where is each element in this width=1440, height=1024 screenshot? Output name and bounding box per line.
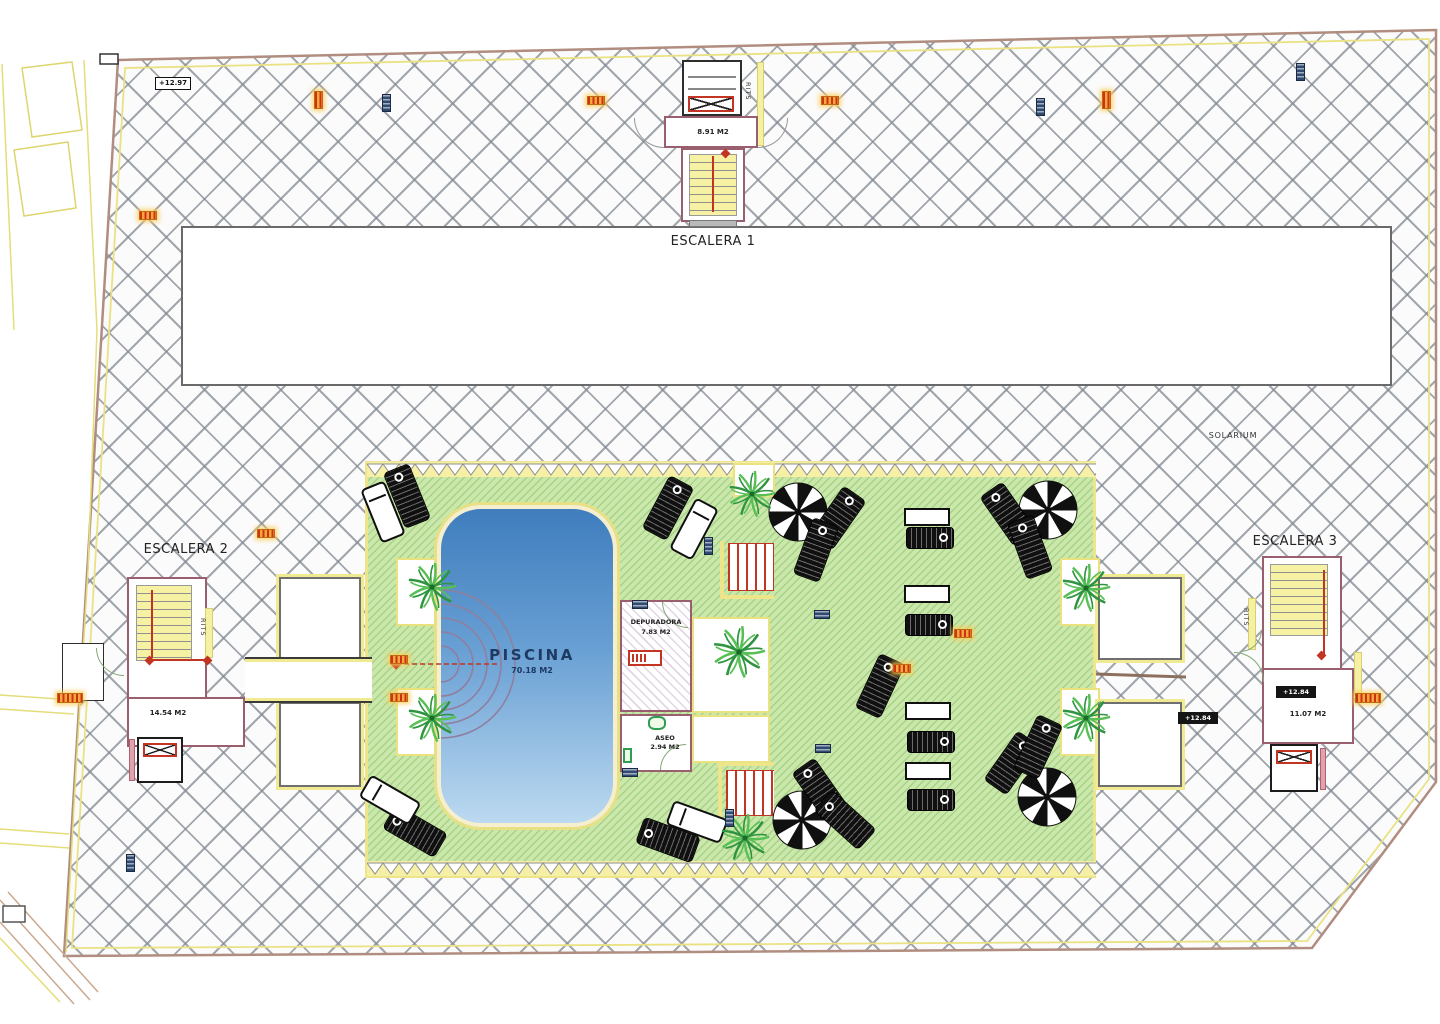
parasol-icon	[1016, 766, 1078, 828]
roof-opening	[279, 577, 361, 660]
marker-chip	[1036, 98, 1045, 116]
sun-lounger	[906, 527, 954, 549]
marker-chip	[1296, 63, 1305, 81]
marker-chip	[632, 600, 648, 609]
escalera2-label: ESCALERA 2	[126, 542, 246, 557]
building-footprint	[181, 226, 1392, 386]
palm-tree-icon	[710, 623, 768, 685]
marker-chip	[954, 629, 972, 638]
marker-chip	[704, 537, 713, 555]
elevator-rail	[1320, 748, 1326, 790]
marker-chip	[139, 211, 157, 220]
piscina-label: PISCINA	[447, 646, 617, 664]
elevator-shaft-e1	[682, 60, 742, 116]
aseo-area-label: 2.94 M2	[640, 743, 690, 751]
table	[904, 508, 950, 526]
marker-chip: +12.84	[1178, 712, 1218, 724]
floor-plan-canvas: +12.84+12.97 ESCALERA 1 ESCALERA 2 ESCAL…	[0, 0, 1440, 1024]
pump-equipment-icon	[628, 650, 662, 666]
rits-label: RITS	[1242, 608, 1250, 627]
table	[904, 585, 950, 603]
area-e2-label: 14.54 M2	[128, 709, 208, 717]
elevation-badge: +12.84	[1276, 686, 1316, 698]
marker-chip	[390, 693, 408, 702]
escalera3-label: ESCALERA 3	[1235, 534, 1355, 549]
marker-chip	[725, 809, 734, 827]
marker-chip	[1355, 693, 1381, 703]
palm-tree-icon	[405, 560, 459, 618]
elevator-icon	[1270, 744, 1318, 792]
table	[905, 702, 951, 720]
landing-e3	[1262, 668, 1354, 744]
marker-chip: +12.97	[155, 77, 191, 90]
marker-chip	[57, 693, 83, 703]
rits-label: RITS	[199, 618, 207, 637]
stair-direction-line	[153, 659, 207, 661]
depuradora-label: DEPURADORA	[620, 618, 692, 626]
rits-label: RITS	[744, 82, 752, 101]
marker-chip	[622, 768, 638, 777]
palm-tree-icon	[1059, 561, 1113, 619]
rits-duct	[1354, 652, 1362, 696]
sun-lounger	[907, 731, 955, 753]
marker-chip	[314, 91, 323, 109]
stairs-e2	[136, 585, 192, 661]
marker-chip	[390, 655, 408, 664]
sink-icon	[623, 748, 632, 763]
marker-chip	[587, 96, 605, 105]
piscina-area-label: 70.18 M2	[447, 666, 617, 675]
depuradora-area-label: 7.83 M2	[620, 628, 692, 636]
corridor	[245, 657, 372, 703]
marker-chip	[126, 854, 135, 872]
marker-chip	[814, 610, 830, 619]
elevator-icon	[137, 737, 183, 783]
palm-tree-icon	[726, 468, 778, 524]
escalera1-label: ESCALERA 1	[653, 234, 773, 249]
pergola	[720, 541, 774, 599]
table	[905, 762, 951, 780]
marker-chip	[382, 94, 391, 112]
marker-chip	[815, 744, 831, 753]
marker-chip	[257, 529, 275, 538]
toilet-icon	[648, 716, 666, 730]
roof-opening	[279, 702, 361, 787]
stair-direction-line	[1323, 570, 1325, 656]
solarium-label: SOLARIUM	[1173, 431, 1293, 440]
stair-direction-line	[712, 156, 714, 212]
sun-lounger	[907, 789, 955, 811]
marker-chip	[893, 664, 911, 673]
marker-chip	[1102, 91, 1111, 109]
palm-tree-icon	[1059, 691, 1113, 749]
elevator-rail	[129, 739, 135, 781]
palm-tree-icon	[405, 691, 459, 749]
stair-direction-line	[151, 590, 153, 658]
stair-cap	[689, 220, 737, 227]
aseo-label: ASEO	[640, 734, 690, 742]
sun-lounger	[905, 614, 953, 636]
area-e1-label: 8.91 M2	[673, 128, 753, 136]
marker-chip	[821, 96, 839, 105]
area-e3-label: 11.07 M2	[1262, 710, 1354, 718]
roof-room	[692, 715, 770, 763]
stairs-e3	[1270, 564, 1328, 636]
